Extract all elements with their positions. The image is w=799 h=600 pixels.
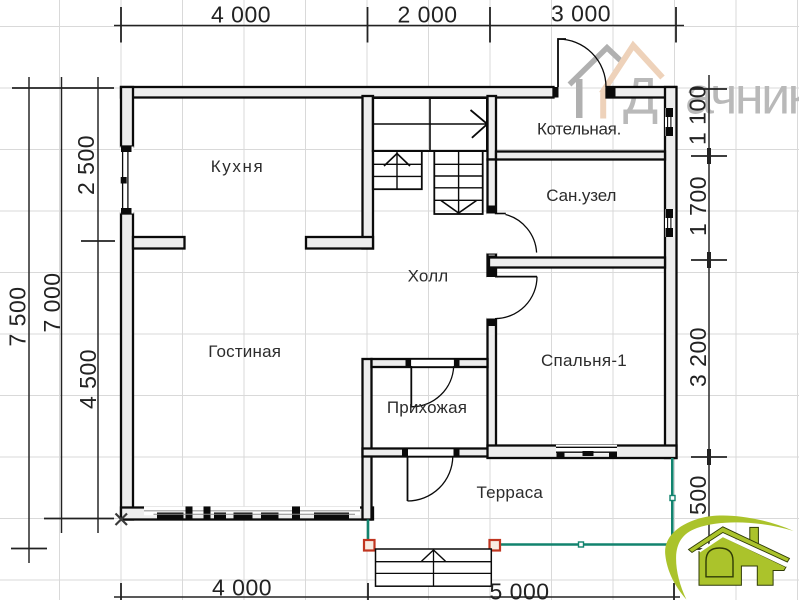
svg-text:Гостиная: Гостиная xyxy=(208,342,281,361)
svg-text:7 000: 7 000 xyxy=(39,272,65,332)
svg-text:Сан.узел: Сан.узел xyxy=(546,186,616,205)
svg-text:Спальня-1: Спальня-1 xyxy=(541,351,627,370)
svg-text:2 500: 2 500 xyxy=(73,135,99,195)
svg-text:500: 500 xyxy=(685,475,711,515)
svg-text:7 500: 7 500 xyxy=(5,286,31,346)
svg-text:3 200: 3 200 xyxy=(685,327,711,387)
svg-text:Терраса: Терраса xyxy=(476,483,543,502)
svg-text:2 000: 2 000 xyxy=(397,2,457,28)
svg-text:1 100: 1 100 xyxy=(685,85,711,145)
svg-text:4 500: 4 500 xyxy=(75,349,101,409)
svg-text:Холл: Холл xyxy=(408,267,449,286)
svg-text:1 700: 1 700 xyxy=(685,176,711,236)
svg-text:3 000: 3 000 xyxy=(551,1,611,27)
svg-text:Кухня: Кухня xyxy=(211,157,265,176)
svg-text:Прихожая: Прихожая xyxy=(387,398,467,417)
svg-text:4 000: 4 000 xyxy=(211,2,271,28)
svg-text:5 000: 5 000 xyxy=(489,579,549,600)
svg-text:4 000: 4 000 xyxy=(212,575,272,600)
svg-text:Котельная.: Котельная. xyxy=(537,120,621,139)
